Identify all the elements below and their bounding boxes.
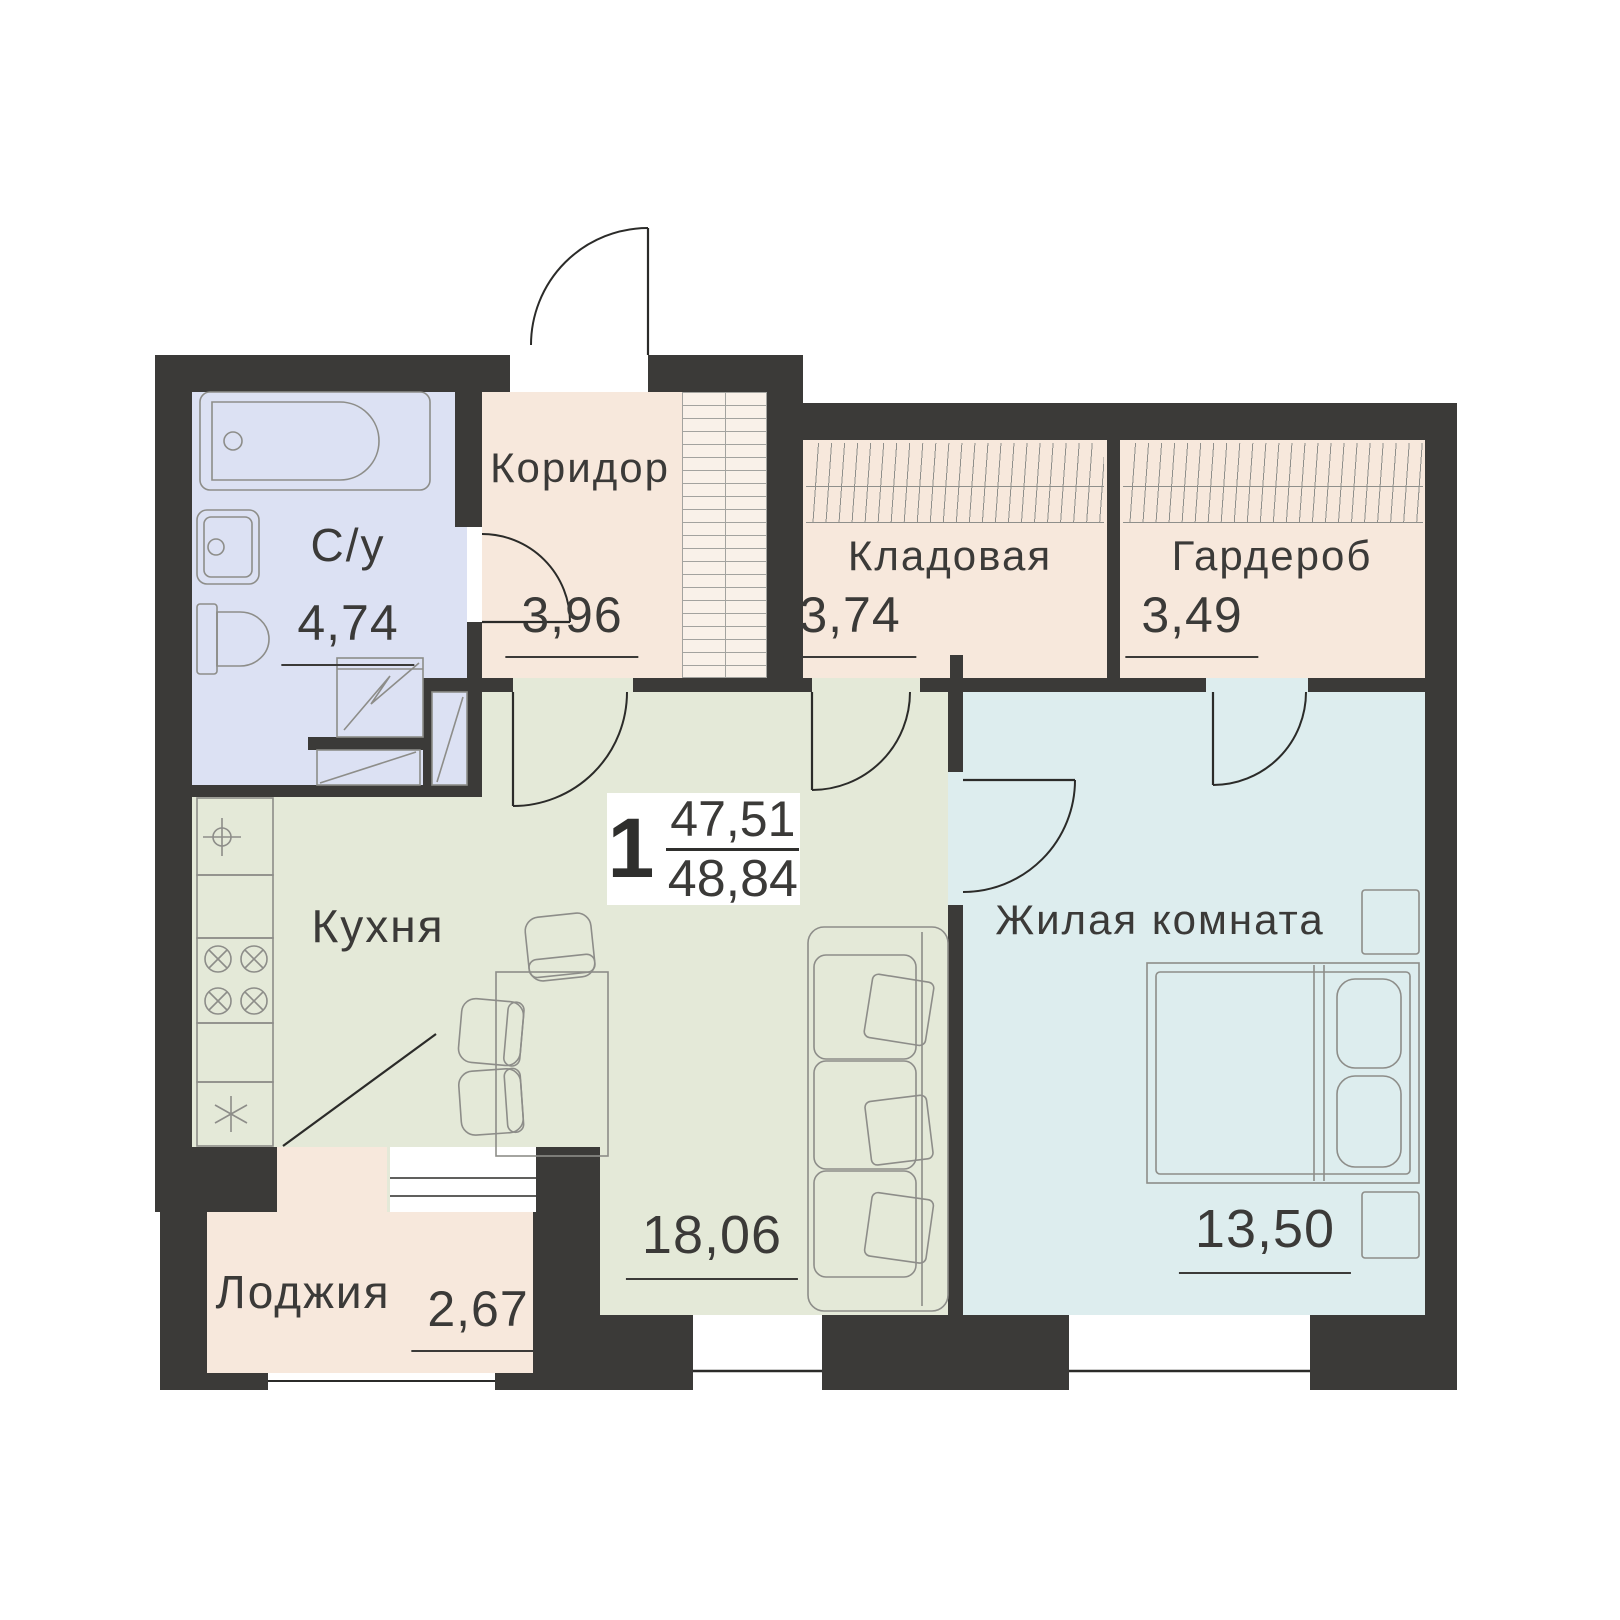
nightstand: [1362, 1192, 1419, 1258]
nightstand: [1362, 890, 1419, 954]
area-corridor: 3,96: [505, 586, 638, 658]
area-kitchen-living: 18,06: [626, 1204, 798, 1280]
label-corridor: Коридор: [490, 444, 670, 492]
kitchen-counter: [197, 798, 273, 1082]
area-bathroom: 4,74: [281, 594, 414, 666]
vent-shaft: [317, 658, 467, 785]
label-living-room: Жилая комната: [995, 896, 1324, 944]
area-storage: 3,74: [783, 586, 916, 658]
toilet: [197, 604, 269, 674]
area-wardrobe: 3,49: [1125, 586, 1258, 658]
chair: [458, 1068, 524, 1136]
window-living: [1069, 1315, 1310, 1390]
door-kitchen: [513, 692, 627, 806]
bed: [1147, 963, 1419, 1183]
bathroom-sink: [197, 510, 259, 584]
chair: [457, 998, 524, 1067]
area-upper-value: 47,51: [666, 794, 799, 851]
label-bathroom: С/у: [311, 518, 386, 572]
door-living: [963, 780, 1075, 892]
area-loggia: 2,67: [411, 1280, 544, 1352]
door-loggia-swing: [283, 1034, 436, 1146]
label-kitchen: Кухня: [311, 899, 444, 953]
window-kitchen: [693, 1315, 822, 1390]
label-wardrobe: Гардероб: [1172, 532, 1373, 580]
bathtub: [200, 392, 430, 490]
door-storage: [812, 692, 910, 790]
door-wardrobe: [1213, 692, 1306, 785]
apartment-info-box: 1 47,51 48,84: [607, 793, 800, 905]
kitchen-appliance: [197, 1082, 273, 1146]
label-loggia: Лоджия: [216, 1265, 391, 1319]
plan-graphics: [0, 0, 1620, 1620]
label-storage: Кладовая: [848, 532, 1052, 580]
area-total-value: 48,84: [666, 851, 799, 905]
stove: [197, 938, 273, 1023]
door-entrance: [531, 228, 648, 355]
sofa: [808, 927, 948, 1311]
floor-plan: С/у 4,74 Коридор 3,96 Кладовая 3,74 Гард…: [0, 0, 1620, 1620]
rooms-count: 1: [608, 811, 655, 887]
area-fraction: 47,51 48,84: [666, 794, 799, 905]
area-living-room: 13,50: [1179, 1198, 1351, 1274]
